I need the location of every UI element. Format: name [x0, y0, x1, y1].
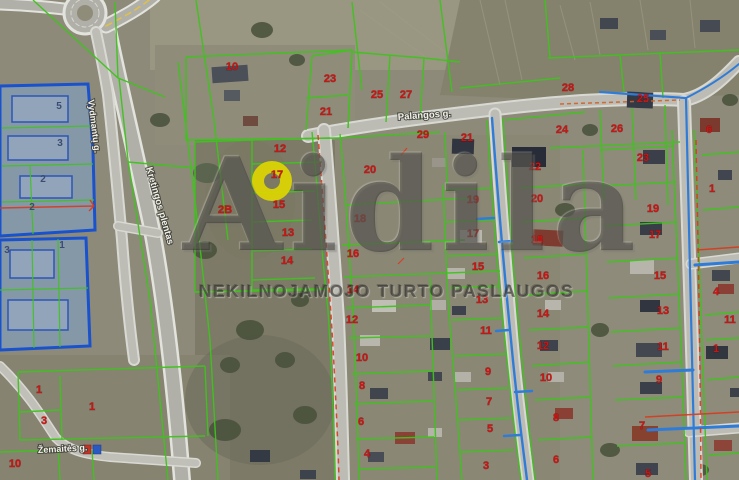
- parcel-number-label: 8: [359, 380, 365, 392]
- blue-zone-parcel-number: 5: [56, 101, 62, 112]
- parcel-number-label: 17: [271, 169, 283, 181]
- parcel-number-label: 25: [637, 93, 649, 105]
- parcel-number-label: 2B: [218, 204, 232, 216]
- blue-zone-layer[interactable]: [0, 84, 95, 350]
- parcel-number-label: 20: [531, 193, 543, 205]
- parcel-number-label: 15: [472, 261, 484, 273]
- parcel-number-label: 22: [529, 161, 541, 173]
- parcel-number-label: 13: [657, 305, 669, 317]
- parcel-number-label: 12: [346, 314, 358, 326]
- parcel-number-label: 3: [483, 460, 489, 472]
- parcel-number-label: 5: [487, 423, 493, 435]
- parcel-number-label: 26: [611, 123, 623, 135]
- parcel-number-label: 13: [476, 294, 488, 306]
- parcel-number-label: 19: [647, 203, 659, 215]
- parcel-number-label: 13: [282, 227, 294, 239]
- parcel-number-label: 17: [467, 228, 479, 240]
- parcel-number-label: 1: [713, 343, 719, 355]
- parcel-number-label: 11: [724, 314, 736, 326]
- map-viewport[interactable]: Palangos g.Kretingos plentasVydmantų g.Ž…: [0, 0, 739, 480]
- parcel-number-label: 6: [358, 416, 364, 428]
- parcel-number-label: 9: [485, 366, 491, 378]
- parcel-number-label: 10: [356, 352, 368, 364]
- parcel-number-label: 21: [320, 106, 332, 118]
- parcel-number-label: 21: [461, 132, 473, 144]
- parcel-number-label: 6: [706, 124, 712, 136]
- parcel-number-label: 24: [556, 124, 569, 136]
- parcel-number-label: 9: [656, 374, 662, 386]
- parcel-number-label: 12: [274, 143, 286, 155]
- parcel-number-label: 10: [540, 372, 552, 384]
- parcel-number-label: 25: [371, 89, 383, 101]
- parcel-number-label: 4: [364, 448, 371, 460]
- parcel-number-label: 10: [226, 61, 238, 73]
- blue-zone-parcel-number: 2: [29, 202, 35, 213]
- parcel-number-label: 18: [531, 234, 543, 246]
- parcel-number-label: 10: [9, 458, 21, 470]
- parcel-number-label: 14: [281, 255, 294, 267]
- parcel-number-label: 14: [347, 284, 360, 296]
- parcel-number-label: 19: [467, 194, 479, 206]
- parcel-number-label: 7: [486, 396, 492, 408]
- map-canvas[interactable]: Palangos g.Kretingos plentasVydmantų g.Ž…: [0, 0, 739, 480]
- parcel-number-label: 8: [553, 412, 559, 424]
- parcel-number-label: 14: [537, 308, 550, 320]
- parcel-number-label: 20: [364, 164, 376, 176]
- parcel-number-label: 28: [562, 82, 574, 94]
- parcel-number-label: 15: [273, 199, 285, 211]
- parcel-number-label: 27: [400, 89, 412, 101]
- parcel-number-label: 3: [41, 415, 47, 427]
- parcel-number-label: 23: [637, 152, 649, 164]
- parcel-number-label: 1: [89, 401, 95, 413]
- parcel-number-label: 1: [36, 384, 42, 396]
- blue-zone-parcel-number: 3: [4, 245, 10, 256]
- parcel-number-label: 7: [639, 420, 645, 432]
- parcel-number-label: 17: [649, 229, 661, 241]
- parcel-number-label: 11: [480, 325, 492, 337]
- blue-zone-parcel-number: 2: [40, 174, 46, 185]
- blue-zone-parcel-number: 3: [57, 138, 63, 149]
- parcel-number-label: 16: [537, 270, 549, 282]
- parcel-number-label: 15: [654, 270, 666, 282]
- blue-zone-parcel-number: 1: [59, 240, 65, 251]
- parcel-number-label: 16: [347, 248, 359, 260]
- parcel-number-label: 29: [417, 129, 429, 141]
- parcel-number-label: 5: [645, 468, 651, 480]
- parcel-number-label: 23: [324, 73, 336, 85]
- parcel-number-label: 4: [713, 286, 720, 298]
- parcel-number-label: 18: [354, 213, 366, 225]
- parcel-number-label: 12: [537, 340, 549, 352]
- parcel-number-label: 6: [553, 454, 559, 466]
- parcel-number-label: 11: [657, 341, 669, 353]
- parcel-number-label: 1: [709, 183, 715, 195]
